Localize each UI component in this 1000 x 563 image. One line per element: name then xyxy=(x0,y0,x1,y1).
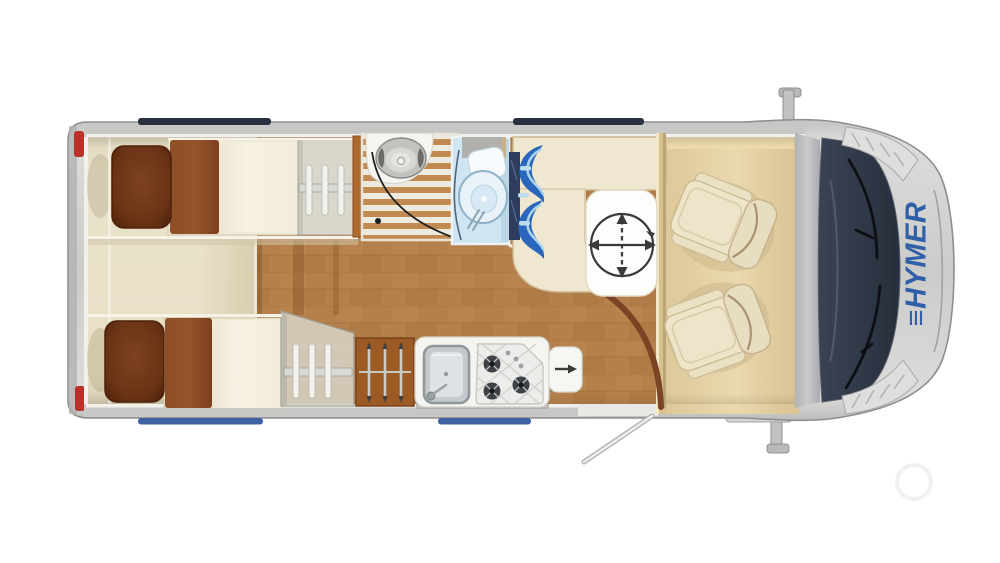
svg-text:≡HYMER: ≡HYMER xyxy=(901,202,933,327)
